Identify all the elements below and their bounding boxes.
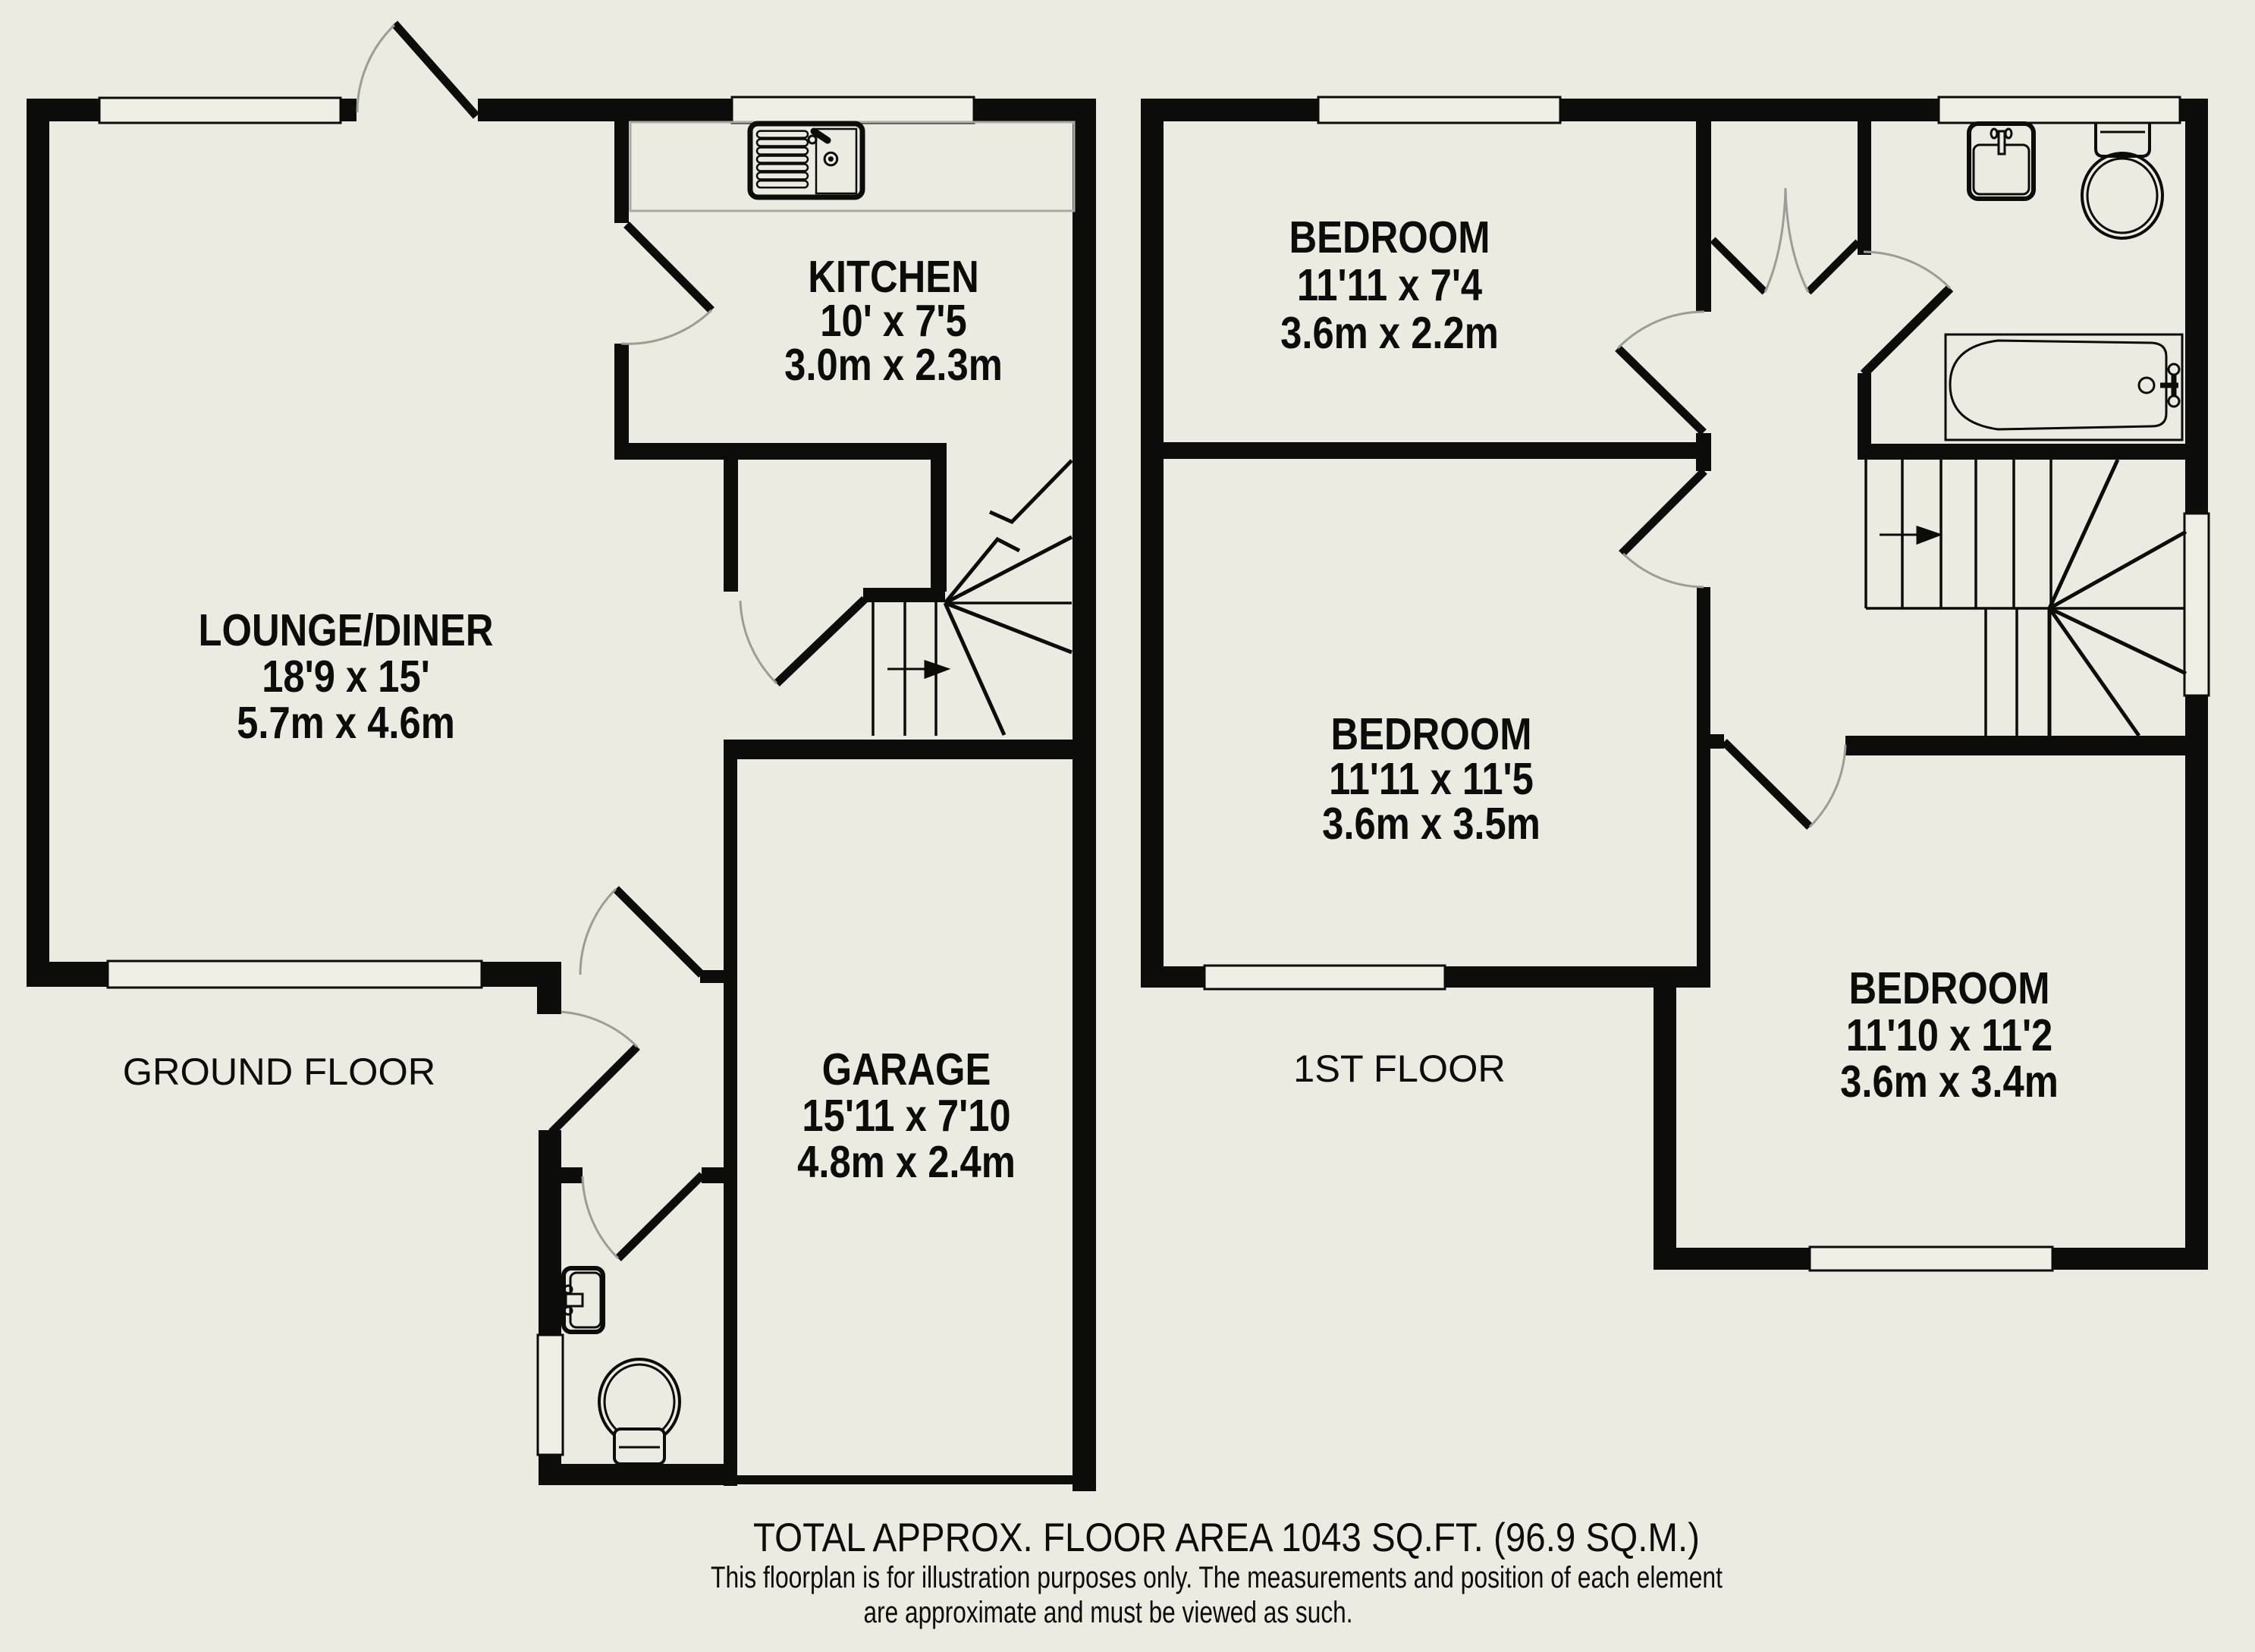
svg-text:GARAGE: GARAGE: [822, 1044, 991, 1094]
svg-text:3.6m x 3.4m: 3.6m x 3.4m: [1840, 1056, 2059, 1106]
svg-text:15'11 x 7'10: 15'11 x 7'10: [802, 1090, 1010, 1140]
svg-text:10' x 7'5: 10' x 7'5: [820, 295, 966, 345]
svg-text:11'10 x 11'2: 11'10 x 11'2: [1846, 1010, 2052, 1060]
svg-text:1ST FLOOR: 1ST FLOOR: [1293, 1047, 1506, 1090]
svg-text:This floorplan is for illustra: This floorplan is for illustration purpo…: [711, 1561, 1723, 1594]
svg-text:3.6m x 3.5m: 3.6m x 3.5m: [1322, 798, 1540, 848]
svg-text:3.6m x 2.2m: 3.6m x 2.2m: [1280, 307, 1499, 357]
svg-text:KITCHEN: KITCHEN: [808, 251, 978, 301]
svg-text:are approximate and must be vi: are approximate and must be viewed as su…: [864, 1596, 1353, 1629]
svg-text:TOTAL APPROX. FLOOR AREA 1043: TOTAL APPROX. FLOOR AREA 1043 SQ.FT. (96…: [753, 1515, 1700, 1560]
svg-text:BEDROOM: BEDROOM: [1289, 212, 1490, 262]
svg-text:BEDROOM: BEDROOM: [1331, 708, 1532, 758]
svg-text:18'9 x 15': 18'9 x 15': [262, 651, 430, 701]
svg-text:GROUND FLOOR: GROUND FLOOR: [123, 1050, 435, 1093]
svg-text:5.7m x 4.6m: 5.7m x 4.6m: [237, 697, 455, 747]
svg-text:11'11 x 11'5: 11'11 x 11'5: [1329, 753, 1534, 803]
svg-text:4.8m x 2.4m: 4.8m x 2.4m: [797, 1136, 1016, 1186]
svg-text:LOUNGE/DINER: LOUNGE/DINER: [199, 605, 494, 655]
svg-text:3.0m x 2.3m: 3.0m x 2.3m: [784, 339, 1003, 389]
svg-text:11'11 x 7'4: 11'11 x 7'4: [1297, 259, 1483, 309]
svg-text:BEDROOM: BEDROOM: [1849, 963, 2050, 1013]
